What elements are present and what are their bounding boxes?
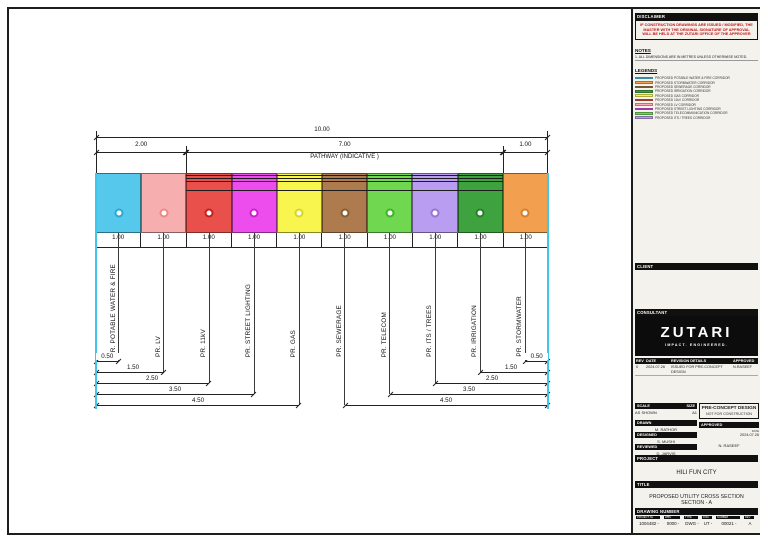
- dim-overall-label: 10.00: [96, 126, 548, 133]
- offset-dim-label: 3.50: [454, 386, 484, 393]
- segment-value: A: [743, 521, 757, 526]
- legend-label: PROPOSED LV CORRIDOR: [655, 103, 696, 107]
- disclaimer-header: DISCLAIMER: [635, 13, 758, 20]
- leader-line: [389, 233, 390, 394]
- pathway-indicative-label: PATHWAY (INDICATIVE ): [186, 154, 502, 161]
- offset-dim-label: 4.50: [183, 397, 213, 404]
- utility-label-street-lighting: PR. STREET LIGHTING: [245, 284, 252, 357]
- revision-table-row: 0 2024.07.26 ISSUED FOR PRE-CONCEPT DESI…: [635, 364, 758, 376]
- legends-section: LEGENDS PROPOSED POTABLE WATER & FIRE CO…: [635, 68, 758, 120]
- pipe-marker: [205, 209, 214, 218]
- drawing-sheet: 10.00 2.00 7.00 PATHWAY (INDICATIVE ) 1.…: [7, 7, 760, 535]
- legend-color-swatch: [635, 81, 653, 84]
- band-gas: [277, 173, 322, 233]
- utility-label-gas: PR. GAS: [290, 330, 297, 357]
- segment-label: NUMBER: [716, 516, 740, 519]
- segment-label: PROJECT No.: [636, 516, 660, 519]
- status-box: PRE-CONCEPT DESIGN NOT FOR CONSTRUCTION: [699, 403, 759, 419]
- title-header: TITLE: [635, 481, 758, 488]
- legend-color-swatch: [635, 103, 653, 106]
- project-name: HILI FUN CITY: [635, 470, 758, 476]
- leader-line: [344, 233, 345, 405]
- utility-label-its-trees: PR. ITS / TREES: [426, 305, 433, 357]
- segment-label: DISC: [702, 516, 712, 519]
- notes-section: NOTES 1. ALL DIMENSIONS ARE IN METRES UN…: [635, 48, 758, 61]
- drawing-number-segment: PROJECT No. 1004482: [635, 516, 663, 526]
- pipe-marker: [114, 209, 123, 218]
- dim-left-group-label: 2.00: [96, 141, 186, 148]
- segment-value: 0000: [663, 521, 683, 526]
- band-irrigation: [458, 173, 503, 233]
- legends-header: LEGENDS: [635, 68, 758, 73]
- pipe-marker: [476, 209, 485, 218]
- extension-line: [96, 131, 97, 173]
- drawn-field: DRAWN M. RATHOR: [635, 420, 697, 432]
- drawing-number-segment: NUMBER 00021: [715, 516, 743, 526]
- legend-list: PROPOSED POTABLE WATER & FIRE CORRIDOR P…: [635, 76, 758, 120]
- drawing-number-segment: DISC UT: [701, 516, 715, 526]
- approved-name: N. RASEEF: [699, 443, 759, 448]
- legend-color-swatch: [635, 99, 653, 102]
- legend-color-swatch: [635, 94, 653, 97]
- project-header: PROJECT: [635, 455, 758, 462]
- extension-line: [503, 146, 504, 173]
- segment-label: REV: [744, 516, 754, 519]
- scale-value: AS SHOWN: [635, 409, 657, 415]
- offset-dim-label: 1.50: [496, 364, 526, 371]
- size-value: A1: [692, 409, 697, 415]
- segment-value: 1004482: [635, 521, 663, 526]
- legend-color-swatch: [635, 108, 653, 111]
- offset-dim-label: 2.50: [137, 375, 167, 382]
- offset-dim-line: [345, 405, 548, 406]
- dim-pathway-group-label: 7.00: [186, 141, 502, 148]
- pipe-marker: [431, 209, 440, 218]
- project-section: PROJECT HILI FUN CITY: [635, 455, 758, 476]
- offset-dim-line: [96, 394, 254, 395]
- dim-right-group-label: 1.00: [503, 141, 548, 148]
- designed-field: DESIGNED S. MUSHI: [635, 432, 697, 444]
- band-telecom: [367, 173, 412, 233]
- drawing-number-segment: WBS 0000: [663, 516, 683, 526]
- consultant-logo-box: ZUTARI IMPACT. ENGINEERED.: [635, 316, 758, 356]
- offset-dim-line: [480, 372, 548, 373]
- disclaimer-text: IF CONSTRUCTION DRAWINGS ARE ISSUED / MO…: [639, 23, 754, 37]
- drawing-number-header: DRAWING NUMBER: [635, 508, 758, 515]
- legend-label: PROPOSED TELECOMMUNICATION CORRIDOR: [655, 111, 728, 115]
- extension-line: [186, 146, 187, 173]
- dim-overall-line: [96, 137, 548, 138]
- extension-line: [547, 131, 548, 173]
- offset-dim-line: [96, 405, 299, 406]
- offset-dim-label: 1.50: [118, 364, 148, 371]
- corridor-right-boundary: [547, 173, 549, 409]
- band-11kv: [186, 173, 231, 233]
- consultant-section: CONSULTANT ZUTARI IMPACT. ENGINEERED.: [635, 309, 758, 356]
- offset-dim-label: 4.50: [431, 397, 461, 404]
- disclaimer-box: IF CONSTRUCTION DRAWINGS ARE ISSUED / MO…: [635, 20, 758, 40]
- segment-label: TYPE: [684, 516, 698, 519]
- legend-label: PROPOSED 11kV CORRIDOR: [655, 98, 699, 102]
- pipe-marker: [250, 209, 259, 218]
- band-lv: [141, 173, 186, 233]
- pipe-marker: [295, 209, 304, 218]
- drawing-number-segment: REV A: [743, 516, 757, 526]
- offset-dim-label: 3.50: [160, 386, 190, 393]
- legend-label: PROPOSED ITS / TREES CORRIDOR: [655, 116, 710, 120]
- zutari-logo: ZUTARI: [661, 325, 733, 341]
- leader-line: [480, 233, 481, 372]
- legend-color-swatch: [635, 90, 653, 93]
- drawing-number-section: DRAWING NUMBER PROJECT No. 1004482 WBS 0…: [635, 508, 758, 526]
- offset-dim-line: [96, 372, 164, 373]
- utility-label-potable-water-fire: PR. POTABLE WATER & FIRE: [110, 264, 117, 357]
- legend-row: PROPOSED ITS / TREES CORRIDOR: [635, 116, 758, 120]
- dim-left-group-line: [96, 152, 186, 153]
- note-item: 1. ALL DIMENSIONS ARE IN METRES UNLESS O…: [635, 55, 758, 62]
- client-section: CLIENT: [635, 263, 758, 270]
- leader-line: [163, 233, 164, 372]
- pipe-marker: [385, 209, 394, 218]
- corridor-bands-row: [96, 173, 548, 233]
- offset-dim-label: 0.50: [96, 353, 119, 360]
- legend-label: PROPOSED STREET LIGHTING CORRIDOR: [655, 107, 721, 111]
- consultant-header: CONSULTANT: [635, 309, 758, 316]
- legend-label: PROPOSED IRRIGATION CORRIDOR: [655, 89, 711, 93]
- approved-field: APPROVED DATE 2024.07.26 N. RASEEF: [699, 422, 759, 448]
- unit-dim: 1.00: [322, 233, 367, 247]
- leader-line: [118, 233, 119, 361]
- drawing-number-segment: TYPE DWG: [683, 516, 701, 526]
- corridor-left-boundary: [95, 173, 97, 409]
- utility-label-stormwater: PR. STORMWATER: [516, 296, 523, 357]
- segment-value: 00021: [715, 521, 743, 526]
- offset-dim-line: [525, 361, 548, 362]
- legend-label: PROPOSED SEWERAGE CORRIDOR: [655, 85, 711, 89]
- band-potable-water-fire: [96, 173, 141, 233]
- band-stormwater: [503, 173, 548, 233]
- offset-dim-line: [96, 361, 119, 362]
- band-its-trees: [412, 173, 457, 233]
- offset-dim-line: [96, 383, 209, 384]
- title-block-panel: DISCLAIMER IF CONSTRUCTION DRAWINGS ARE …: [631, 9, 760, 533]
- legend-label: PROPOSED GAS CORRIDOR: [655, 94, 699, 98]
- status-line1: PRE-CONCEPT DESIGN: [701, 406, 757, 411]
- utility-label-irrigation: PR. IRRIGATION: [471, 305, 478, 357]
- band-sewerage: [322, 173, 367, 233]
- notes-header: NOTES: [635, 48, 758, 53]
- segment-value: DWG: [683, 521, 701, 526]
- unit-dim: 1.00: [413, 233, 458, 247]
- utility-label-11kv: PR. 11kV: [200, 329, 207, 357]
- utility-label-telecom: PR. TELECOM: [381, 312, 388, 357]
- client-header: CLIENT: [635, 263, 758, 270]
- offset-dim-label: 0.50: [525, 353, 548, 360]
- legend-color-swatch: [635, 86, 653, 89]
- leader-line: [435, 233, 436, 383]
- scale-field: SCALE SIZE AS SHOWN A1: [635, 403, 697, 415]
- segment-label: WBS: [664, 516, 680, 519]
- offset-dim-label: 2.50: [477, 375, 507, 382]
- unit-dim: 1.00: [458, 233, 503, 247]
- leader-line: [525, 233, 526, 361]
- zutari-tagline: IMPACT. ENGINEERED.: [665, 343, 728, 347]
- legend-label: PROPOSED POTABLE WATER & FIRE CORRIDOR: [655, 76, 730, 80]
- leader-line: [254, 233, 255, 394]
- unit-dim: 1.00: [368, 233, 413, 247]
- approved-date-value: 2024.07.26: [699, 433, 759, 437]
- pipe-marker: [159, 209, 168, 218]
- disclaimer-section: DISCLAIMER IF CONSTRUCTION DRAWINGS ARE …: [635, 13, 758, 40]
- segment-value: UT: [701, 521, 715, 526]
- utility-label-lv: PR. LV: [155, 336, 162, 357]
- status-line2: NOT FOR CONSTRUCTION: [701, 412, 757, 416]
- band-street-lighting: [232, 173, 277, 233]
- leader-line: [299, 233, 300, 405]
- legend-color-swatch: [635, 112, 653, 115]
- legend-color-swatch: [635, 77, 653, 80]
- dim-pathway-group-line: [186, 152, 502, 153]
- leader-line: [209, 233, 210, 383]
- dim-right-group-line: [503, 152, 548, 153]
- drawing-title-line2: SECTION - A: [635, 500, 758, 506]
- utility-label-sewerage: PR. SEWERAGE: [336, 305, 343, 357]
- pipe-marker: [521, 209, 530, 218]
- pipe-marker: [340, 209, 349, 218]
- offset-dim-line: [435, 383, 548, 384]
- offset-dim-line: [390, 394, 548, 395]
- drawing-number-row: PROJECT No. 1004482 WBS 0000 TYPE DWG: [635, 516, 758, 526]
- utility-cross-section-drawing: 10.00 2.00 7.00 PATHWAY (INDICATIVE ) 1.…: [96, 127, 556, 427]
- revision-table: REV DATE REVISION DETAILS APPROVED 0 202…: [635, 358, 758, 376]
- scale-label: SCALE: [637, 404, 650, 409]
- legend-color-swatch: [635, 116, 653, 119]
- size-label: SIZE: [687, 404, 695, 409]
- title-section: TITLE PROPOSED UTILITY CROSS SECTION SEC…: [635, 481, 758, 506]
- legend-label: PROPOSED STORMWATER CORRIDOR: [655, 81, 715, 85]
